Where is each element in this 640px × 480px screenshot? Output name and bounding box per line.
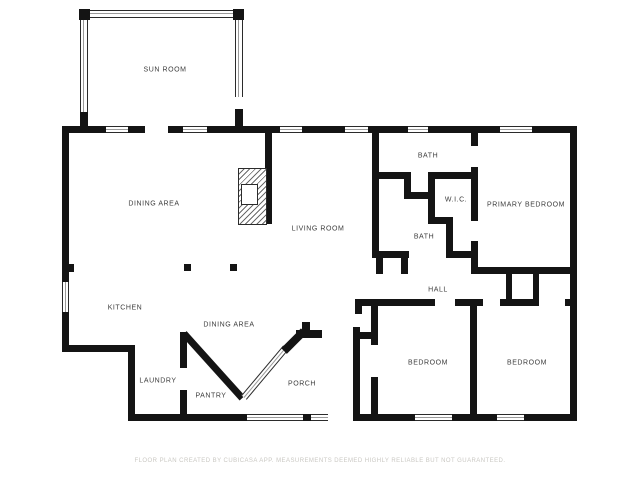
room-label-sun-room: SUN ROOM [144, 67, 187, 74]
wall-laundry-right [180, 390, 187, 421]
wall-pilaster [69, 264, 74, 272]
wall-primary-left [471, 131, 478, 146]
window [345, 126, 368, 133]
wall-closet [371, 306, 378, 345]
room-label-bath-upper: BATH [418, 153, 438, 160]
sunroom-corner-post [233, 9, 244, 20]
wall-pantry-diagonal [181, 331, 244, 400]
sunroom-corner-post [79, 9, 90, 20]
wall-closet [371, 377, 378, 414]
window [500, 126, 532, 133]
room-label-wic: W.I.C. [445, 197, 467, 204]
wall-exterior-bottom-left [62, 345, 135, 352]
porch-entry-opening [328, 414, 353, 421]
room-label-bath-lower: BATH [414, 234, 434, 241]
wall-primary-left [471, 167, 478, 221]
room-label-pantry: PANTRY [195, 393, 226, 400]
wall-laundry-left [128, 345, 135, 421]
wall-porch-corner [302, 322, 310, 332]
sunroom-window-top [90, 10, 233, 18]
porch-railing-post [303, 414, 311, 421]
sunroom-window-left [80, 20, 88, 113]
floor-plan: SUN ROOM DINING AREA LIVING ROOM BATH W.… [0, 0, 640, 480]
wall-bath-vestibule [372, 251, 409, 258]
window [497, 414, 524, 421]
porch-railing [247, 414, 328, 421]
room-label-porch: PORCH [288, 381, 316, 388]
room-label-dining-area: DINING AREA [128, 201, 179, 208]
support-column [184, 264, 191, 271]
porch-window-diagonal [241, 345, 288, 399]
fireplace-opening [241, 184, 258, 205]
room-label-kitchen: KITCHEN [108, 305, 143, 312]
wall-bedrooms-top [565, 299, 577, 306]
wall-bedrooms-top-cap [355, 299, 362, 314]
room-label-laundry: LAUNDRY [139, 378, 176, 385]
window [408, 126, 428, 133]
wall-closet [353, 332, 378, 339]
wall-bedroom-separation [470, 299, 477, 421]
window [183, 126, 207, 133]
window [106, 126, 128, 133]
wall-bath-doorjamb [376, 258, 383, 274]
room-label-primary-bedroom: PRIMARY BEDROOM [487, 202, 565, 209]
window [415, 414, 452, 421]
window [62, 282, 69, 312]
room-label-dining-area-2: DINING AREA [203, 322, 254, 329]
support-column [230, 264, 237, 271]
disclaimer-text: FLOOR PLAN CREATED BY CUBICASA APP. MEAS… [135, 458, 506, 464]
room-label-bedroom-2: BEDROOM [507, 360, 547, 367]
wall-bedrooms-top [500, 299, 538, 306]
room-label-hall: HALL [428, 287, 448, 294]
wall-bedrooms-top [455, 299, 483, 306]
wall-bedroom1-left [353, 327, 360, 421]
sunroom-door-opening [145, 126, 168, 133]
room-label-bedroom-1: BEDROOM [408, 360, 448, 367]
wall-hall-top [471, 267, 577, 274]
wall-bath-doorjamb [401, 258, 408, 274]
wall-living-bath [372, 131, 379, 258]
wall-bedrooms-top [355, 299, 435, 306]
room-label-living-room: LIVING ROOM [292, 226, 345, 233]
sunroom-window-right [235, 20, 243, 97]
window [280, 126, 302, 133]
wall-exterior-left [62, 126, 69, 352]
fireplace [238, 168, 267, 225]
